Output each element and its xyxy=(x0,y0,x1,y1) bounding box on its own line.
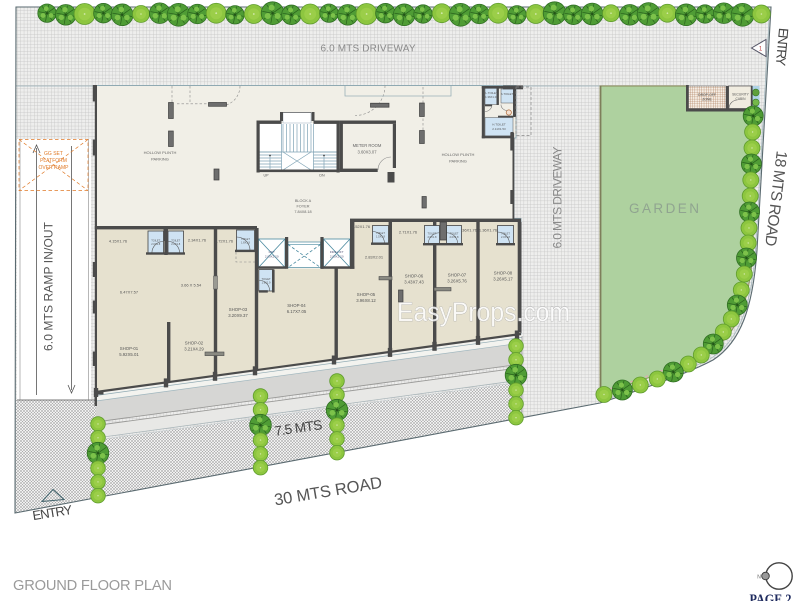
svg-text:3.96X8.12: 3.96X8.12 xyxy=(356,298,376,303)
svg-text:METER ROOM: METER ROOM xyxy=(353,143,382,148)
svg-text:3.60X3.07: 3.60X3.07 xyxy=(357,150,377,155)
svg-text:OVER RAMP: OVER RAMP xyxy=(38,165,69,171)
svg-text:1.72X1.76: 1.72X1.76 xyxy=(215,239,234,244)
svg-text:3.43X7.43: 3.43X7.43 xyxy=(404,280,424,285)
svg-text:1.52X1.76: 1.52X1.76 xyxy=(352,224,371,229)
svg-text:2.0X1.8: 2.0X1.8 xyxy=(501,235,510,239)
svg-text:2.00X2.20: 2.00X2.20 xyxy=(330,255,344,259)
svg-text:TOILET: TOILET xyxy=(427,231,436,235)
svg-text:LIFT: LIFT xyxy=(269,250,275,254)
svg-text:BLOCK A: BLOCK A xyxy=(295,199,312,203)
svg-text:TOILET: TOILET xyxy=(262,277,271,281)
svg-text:30 MTS ROAD: 30 MTS ROAD xyxy=(273,474,384,510)
svg-text:1.8X1.9: 1.8X1.9 xyxy=(262,280,271,284)
svg-text:N: N xyxy=(757,575,761,581)
svg-text:SHOP-01: SHOP-01 xyxy=(120,346,139,351)
svg-text:1.8X1.9: 1.8X1.9 xyxy=(241,240,250,244)
svg-text:5.92X5.01: 5.92X5.01 xyxy=(119,352,139,357)
svg-text:SECURITY: SECURITY xyxy=(732,93,749,97)
svg-text:3.20X9.37: 3.20X9.37 xyxy=(228,313,248,318)
svg-text:6.17X7.05: 6.17X7.05 xyxy=(287,309,307,314)
svg-text:1.5X1.8: 1.5X1.8 xyxy=(376,235,385,239)
svg-text:DN: DN xyxy=(319,174,325,178)
svg-text:TOILET: TOILET xyxy=(376,231,385,235)
svg-text:SHOP-07: SHOP-07 xyxy=(448,273,467,278)
svg-text:HOLLOW PLINTH: HOLLOW PLINTH xyxy=(144,150,177,155)
svg-text:UP: UP xyxy=(264,174,270,178)
svg-text:H.TOILET: H.TOILET xyxy=(492,123,506,127)
svg-text:3.26X5.76: 3.26X5.76 xyxy=(447,279,467,284)
svg-text:ZONE: ZONE xyxy=(702,98,712,102)
svg-text:7.84X8.18: 7.84X8.18 xyxy=(294,210,311,214)
svg-text:2.0X1.8: 2.0X1.8 xyxy=(428,235,437,239)
svg-text:CABIN: CABIN xyxy=(735,97,746,101)
svg-text:2.0X1.8: 2.0X1.8 xyxy=(450,235,459,239)
svg-text:3.21X4.29: 3.21X4.29 xyxy=(184,347,204,352)
svg-text:3.26X5.17: 3.26X5.17 xyxy=(493,277,513,282)
svg-text:6.47X7.57: 6.47X7.57 xyxy=(120,290,139,295)
svg-text:2.11X1.53: 2.11X1.53 xyxy=(492,127,506,131)
svg-text:2.83X2.01: 2.83X2.01 xyxy=(365,255,384,260)
svg-text:FIRE LIFT: FIRE LIFT xyxy=(330,250,344,254)
svg-text:TOILET: TOILET xyxy=(151,239,160,243)
svg-text:1.36X1.76: 1.36X1.76 xyxy=(479,228,498,233)
svg-text:S.TOILET: S.TOILET xyxy=(501,92,514,96)
svg-text:TOILET: TOILET xyxy=(449,231,458,235)
svg-text:PARKING: PARKING xyxy=(449,159,467,164)
svg-text:GROUND FLOOR PLAN: GROUND FLOOR PLAN xyxy=(13,578,172,594)
svg-text:1.36X1.02: 1.36X1.02 xyxy=(485,95,498,99)
svg-text:PAGE 2: PAGE 2 xyxy=(750,592,792,601)
svg-text:TOILET: TOILET xyxy=(241,237,250,241)
svg-text:SHOP-04: SHOP-04 xyxy=(287,303,306,308)
svg-text:PARKING: PARKING xyxy=(151,157,169,162)
svg-text:6.0 MTS DRIVEWAY: 6.0 MTS DRIVEWAY xyxy=(551,147,565,249)
svg-text:PLATFORM: PLATFORM xyxy=(40,158,67,164)
svg-text:SHOP-08: SHOP-08 xyxy=(494,271,513,276)
svg-text:.36X1.76: .36X1.76 xyxy=(461,228,478,233)
svg-text:18 MTS ROAD: 18 MTS ROAD xyxy=(761,150,790,247)
svg-text:2.34X1.76: 2.34X1.76 xyxy=(188,238,207,243)
svg-text:4.15X1.76: 4.15X1.76 xyxy=(109,239,128,244)
svg-text:SHOP-03: SHOP-03 xyxy=(229,307,248,312)
svg-text:2.0X1.8: 2.0X1.8 xyxy=(151,242,160,246)
svg-text:6.0 MTS DRIVEWAY: 6.0 MTS DRIVEWAY xyxy=(321,44,416,55)
svg-text:SHOP-05: SHOP-05 xyxy=(357,292,376,297)
svg-text:3.66 X 5.54: 3.66 X 5.54 xyxy=(181,283,202,288)
svg-text:SHOP-06: SHOP-06 xyxy=(405,274,424,279)
svg-text:6.0 MTS RAMP IN/OUT: 6.0 MTS RAMP IN/OUT xyxy=(42,221,56,351)
svg-text:DROP-OFF: DROP-OFF xyxy=(698,93,716,97)
svg-text:2.00X2.20: 2.00X2.20 xyxy=(265,255,279,259)
svg-text:HOLLOW PLINTH: HOLLOW PLINTH xyxy=(442,152,475,157)
svg-text:TOILET: TOILET xyxy=(501,231,510,235)
svg-text:TOILET: TOILET xyxy=(171,239,180,243)
svg-text:EasyProps.com: EasyProps.com xyxy=(397,297,570,327)
svg-text:ENTRY: ENTRY xyxy=(773,27,791,66)
svg-text:GG SET: GG SET xyxy=(44,151,63,157)
svg-text:2.0X1.8: 2.0X1.8 xyxy=(171,242,180,246)
svg-text:2.71X1.76: 2.71X1.76 xyxy=(399,230,418,235)
svg-text:SHOP-02: SHOP-02 xyxy=(185,341,204,346)
svg-text:FOYER: FOYER xyxy=(296,205,309,209)
